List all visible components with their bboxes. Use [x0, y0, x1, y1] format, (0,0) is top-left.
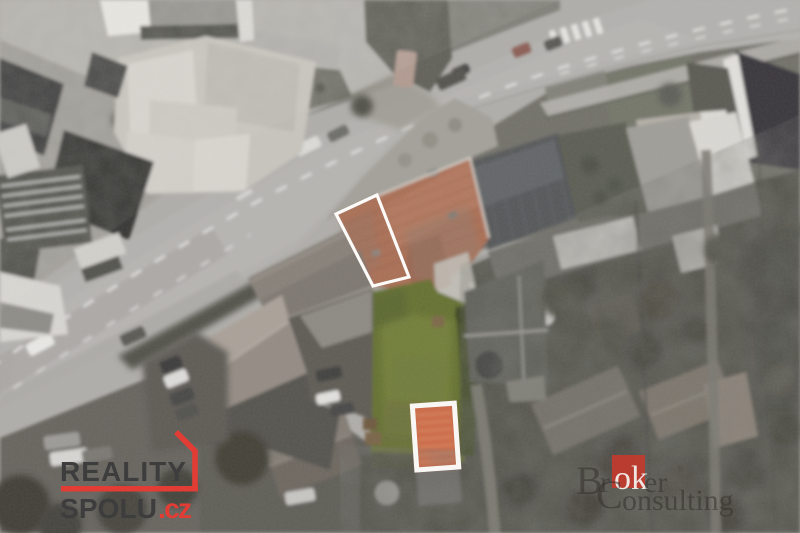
svg-text:.cz: .cz	[158, 493, 192, 524]
svg-text:C: C	[596, 472, 623, 517]
svg-text:®: ®	[677, 464, 684, 474]
svg-text:REALITY: REALITY	[60, 456, 186, 487]
svg-text:SPOLU: SPOLU	[60, 493, 157, 524]
svg-text:onsulting: onsulting	[622, 484, 734, 517]
